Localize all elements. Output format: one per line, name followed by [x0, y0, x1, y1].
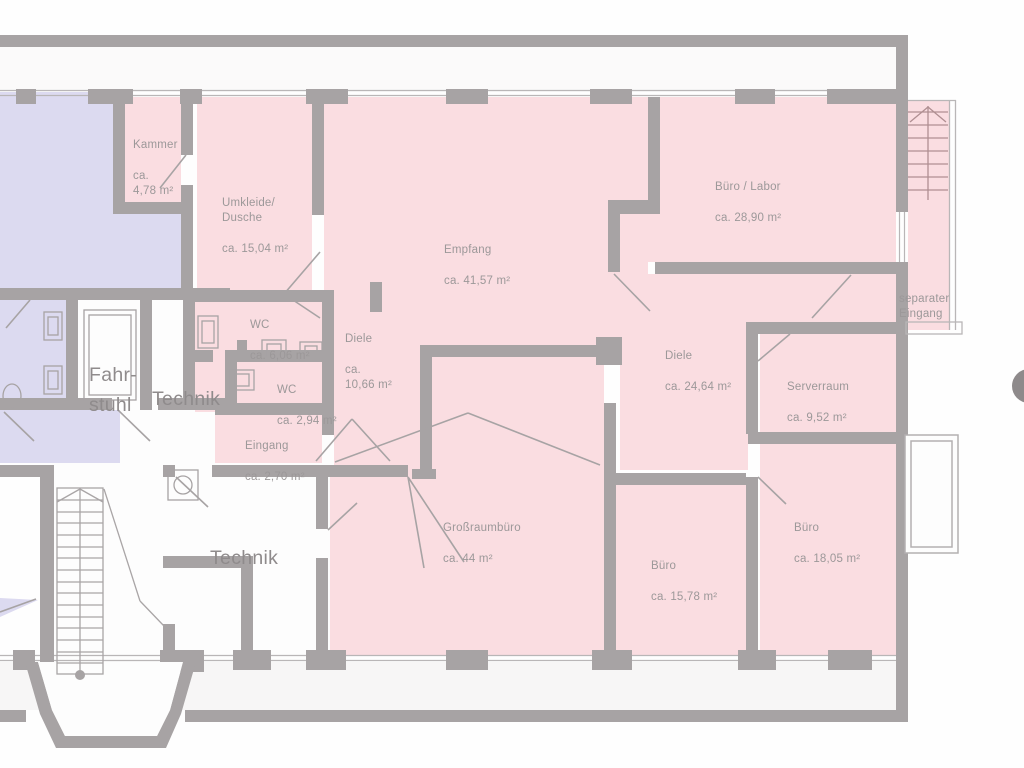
room-label-grossraumbuero: Großraumbüro ca. 44 m²	[443, 505, 521, 583]
room-label-buero-labor: Büro / Labor ca. 28,90 m²	[715, 164, 781, 242]
room-label-technik-unten: Technik	[210, 515, 278, 603]
room-label-fahrstuhl: Fahr- stuhl	[89, 332, 137, 449]
room-label-separater-eingang: separater Eingang	[899, 276, 949, 338]
room-label-kammer: Kammer ca. 4,78 m²	[133, 122, 178, 215]
room-label-umkleide-dusche: Umkleide/ Dusche ca. 15,04 m²	[222, 180, 288, 273]
room-label-empfang: Empfang ca. 41,57 m²	[444, 227, 510, 305]
room-label-eingang: Eingang ca. 2,70 m²	[245, 423, 305, 501]
room-label-serverraum: Serverraum ca. 9,52 m²	[787, 364, 849, 442]
room-label-buero-mitte: Büro ca. 15,78 m²	[651, 543, 717, 621]
floor-plan: Kammer ca. 4,78 m² Umkleide/ Dusche ca. …	[0, 0, 1024, 768]
room-label-diele-gross: Diele ca. 24,64 m²	[665, 333, 731, 411]
room-label-technik-oben: Technik	[152, 356, 220, 444]
room-label-buero-rechts: Büro ca. 18,05 m²	[794, 505, 860, 583]
room-labels: Kammer ca. 4,78 m² Umkleide/ Dusche ca. …	[0, 0, 1024, 768]
room-label-diele-klein: Diele ca. 10,66 m²	[345, 316, 392, 409]
